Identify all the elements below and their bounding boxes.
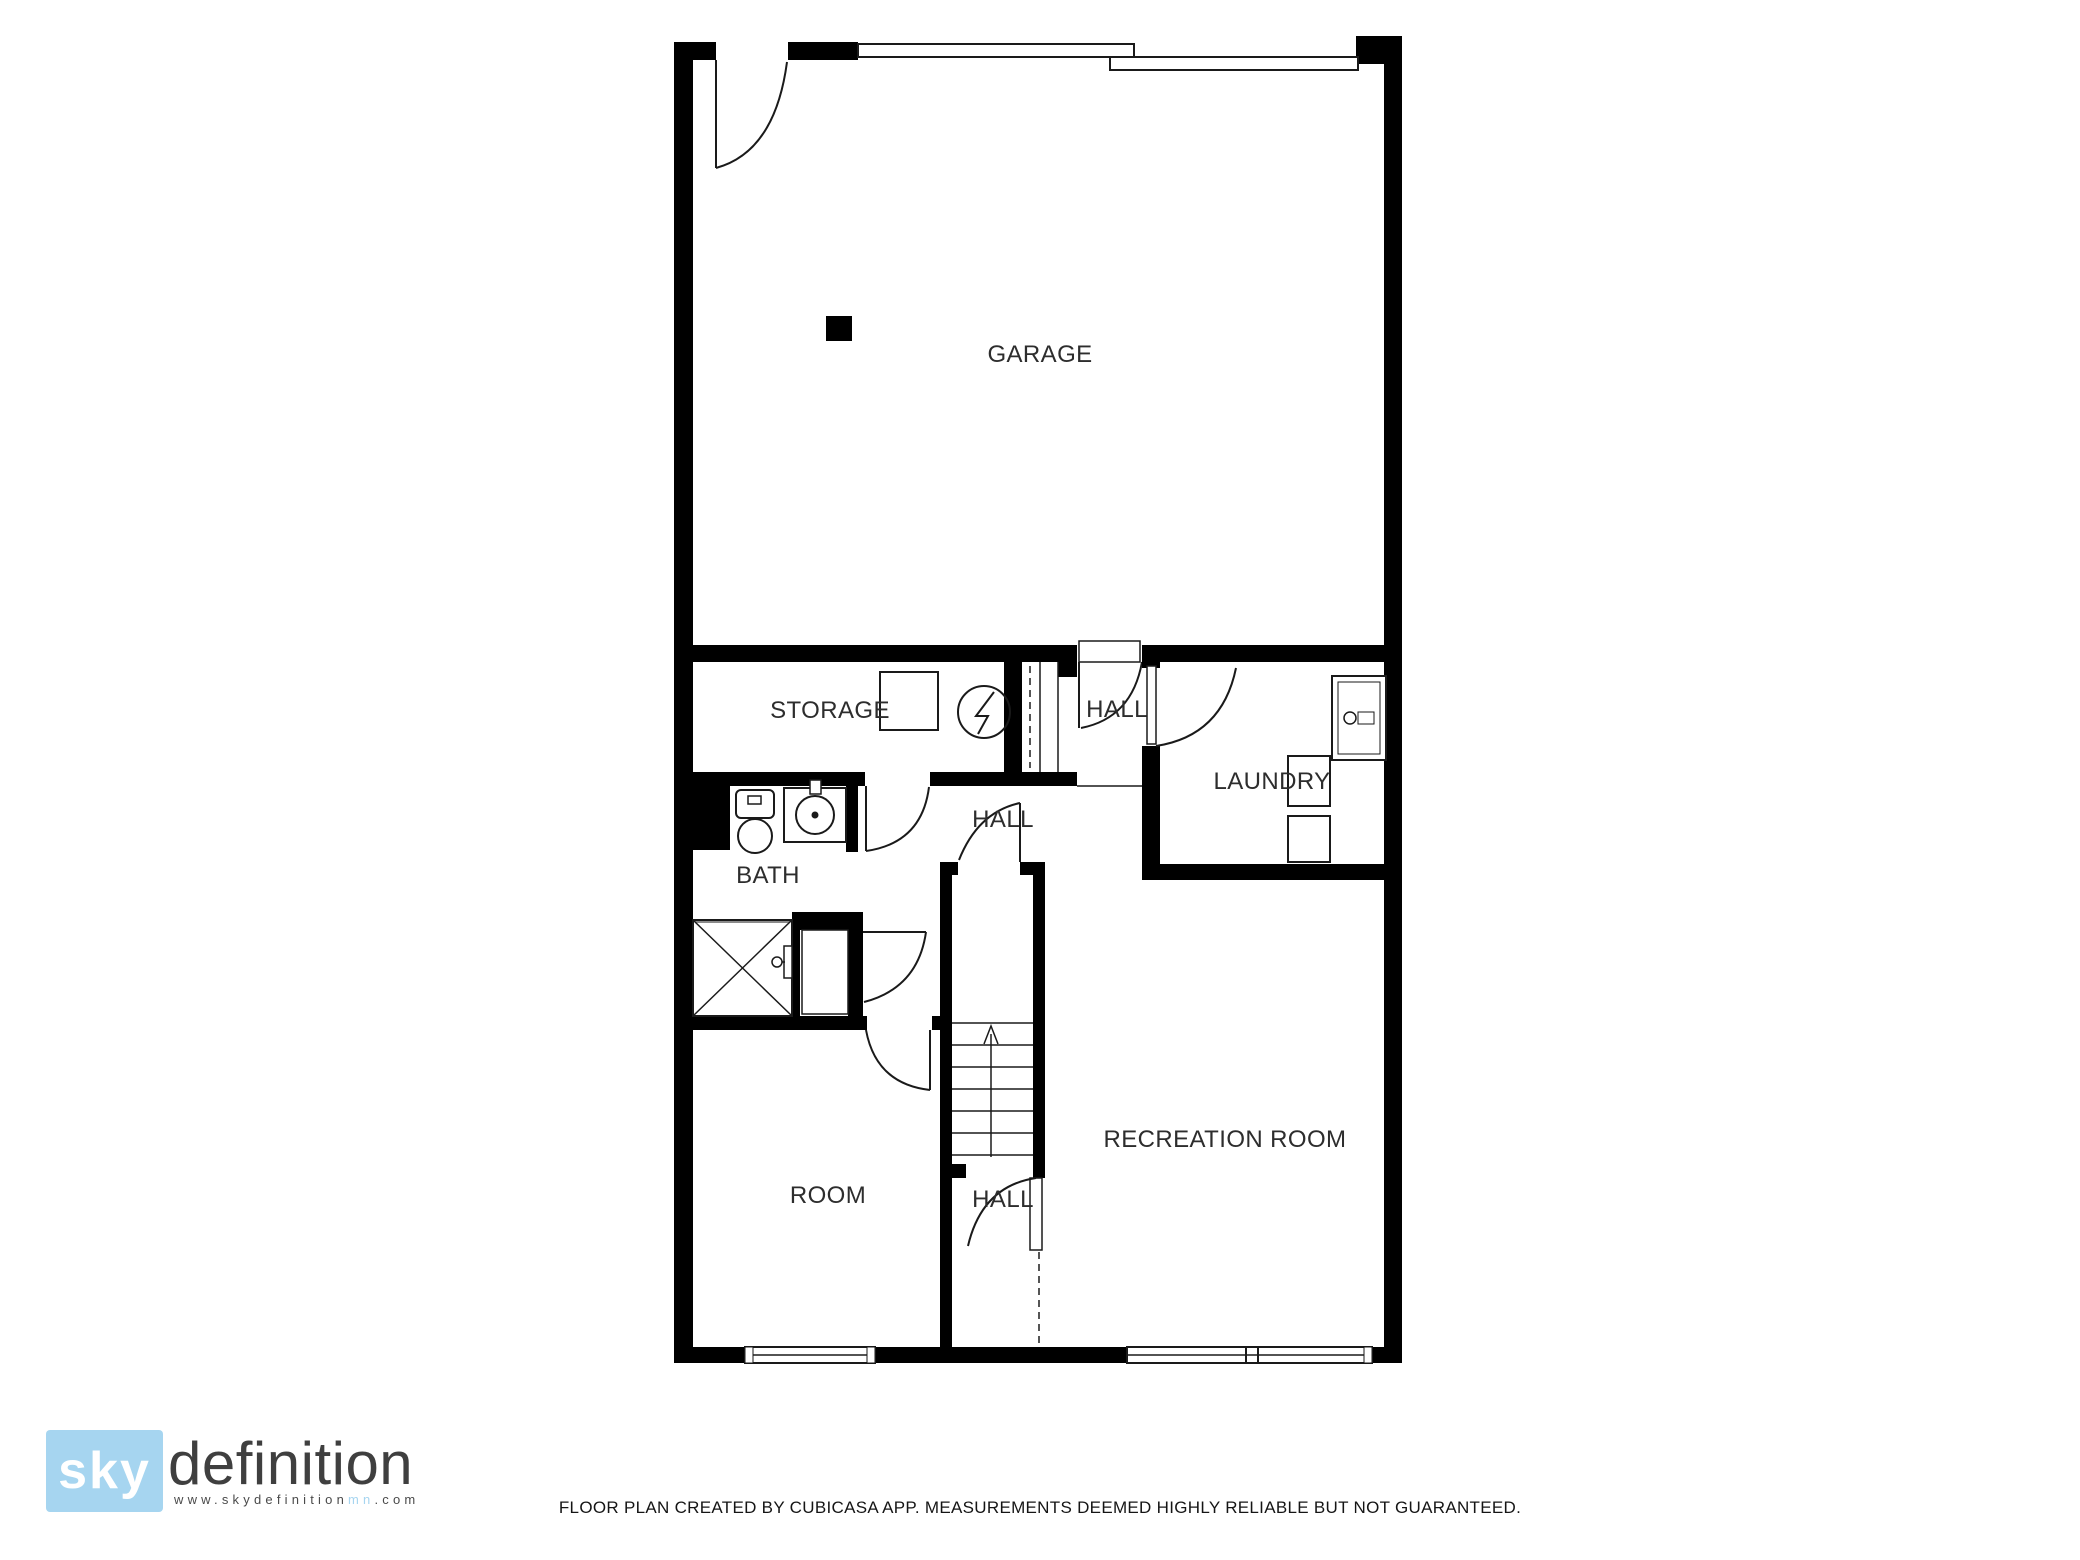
water-heater-icon <box>958 686 1010 738</box>
floor-plan-drawing <box>0 0 2080 1560</box>
room-label-hall-landing: HALL <box>972 806 1034 834</box>
logo-definition-text: definition <box>168 1434 413 1494</box>
room-door-icon <box>866 1030 930 1090</box>
room-label-hall-upper: HALL <box>1086 696 1148 724</box>
washer-icon <box>1332 676 1386 760</box>
closet <box>802 930 926 1014</box>
room-label-recreation: RECREATION ROOM <box>1104 1126 1347 1154</box>
recreation-window-icon <box>1127 1347 1372 1363</box>
toilet-icon <box>736 790 774 853</box>
laundry-door-icon <box>1147 666 1236 746</box>
stairs-icon <box>952 1023 1033 1157</box>
room-window-icon <box>745 1347 875 1363</box>
room-label-room: ROOM <box>790 1182 866 1210</box>
room-label-laundry: LAUNDRY <box>1213 768 1330 796</box>
footer-disclaimer: FLOOR PLAN CREATED BY CUBICASA APP. MEAS… <box>0 1498 2080 1518</box>
storage-door-icon <box>866 786 929 851</box>
floor-plan-page: GARAGE STORAGE HALL LAUNDRY BATH HALL RO… <box>0 0 2080 1560</box>
upper-stair-flight <box>1030 662 1058 772</box>
garage-bottom-wall <box>674 645 1402 662</box>
garage-door-icon <box>858 44 1358 70</box>
shower-icon <box>693 920 792 1016</box>
room-label-garage: GARAGE <box>987 341 1092 369</box>
room-label-storage: STORAGE <box>770 697 890 725</box>
logo-sky-text: sky <box>58 1445 151 1497</box>
stairwell-walls <box>940 862 1045 1363</box>
room-label-bath: BATH <box>736 862 800 890</box>
garage-post <box>826 316 852 341</box>
sink-icon <box>784 780 846 842</box>
entry-door-icon <box>716 60 787 168</box>
room-label-hall-lower: HALL <box>972 1186 1034 1214</box>
